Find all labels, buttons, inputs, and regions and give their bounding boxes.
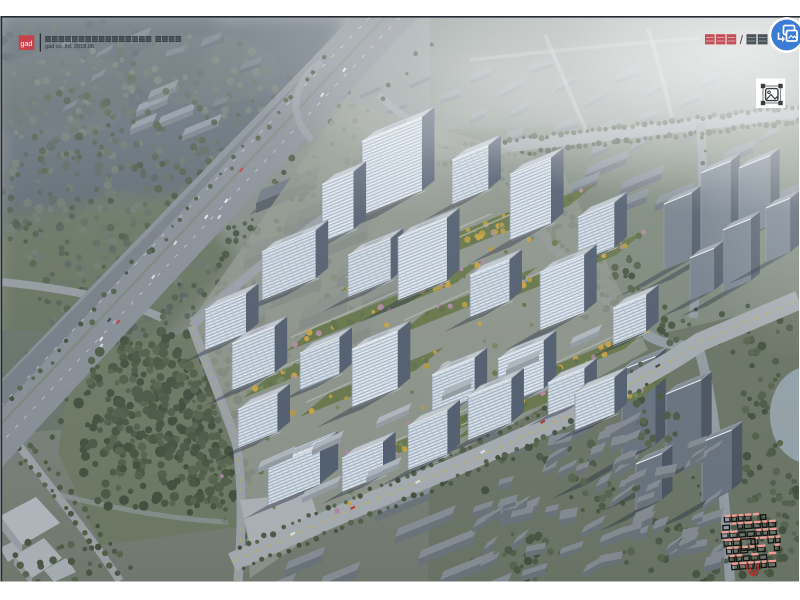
svg-text:gad: gad xyxy=(20,39,32,48)
svg-text:gad co.,ltd. 2018.06: gad co.,ltd. 2018.06 xyxy=(45,44,94,50)
